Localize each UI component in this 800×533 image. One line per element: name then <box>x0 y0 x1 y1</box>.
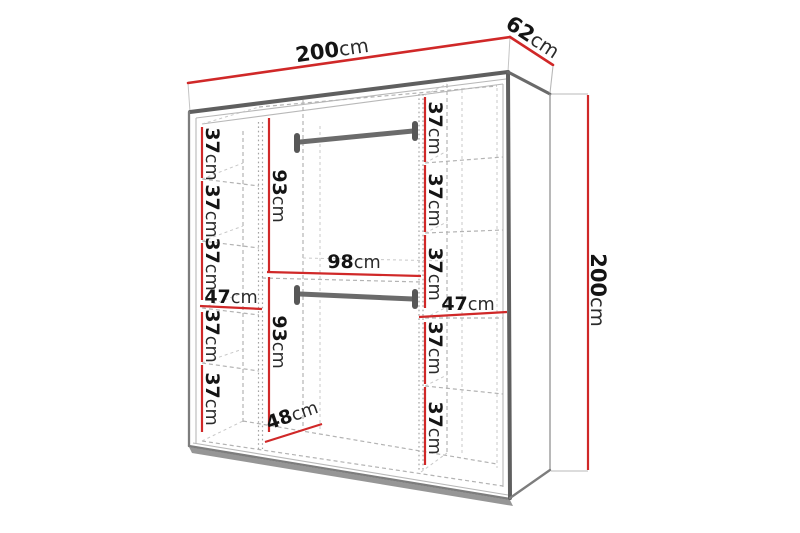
wardrobe-dimension-diagram: 200cm 62cm 200cm 37cm 37cm 37cm 47cm 37c… <box>0 0 800 533</box>
right-shelf-dim-2: 37cm <box>424 173 446 226</box>
front-right-edge <box>508 72 510 498</box>
right-shelf-dim-6: 37cm <box>424 401 446 454</box>
depth-extension-line <box>550 66 553 93</box>
height-dimension-label: 200cm <box>586 253 610 327</box>
left-shelf-dim-4: 47cm <box>204 286 257 308</box>
left-shelf-dim-1: 37cm <box>201 127 223 180</box>
right-shelf-dim-5: 37cm <box>424 321 446 374</box>
wardrobe-side-panel <box>508 72 550 498</box>
diagram-canvas: 200cm 62cm 200cm 37cm 37cm 37cm 47cm 37c… <box>0 0 800 533</box>
left-shelf-dim-5: 37cm <box>201 309 223 362</box>
left-shelf-dim-6: 37cm <box>201 372 223 425</box>
depth-dimension-label: 62cm <box>502 11 565 63</box>
right-shelf-dim-4: 47cm <box>441 293 494 315</box>
center-upper-height-label: 93cm <box>268 169 290 222</box>
right-shelf-dim-1: 37cm <box>424 101 446 154</box>
left-shelf-dim-2: 37cm <box>201 184 223 237</box>
center-lower-height-label: 93cm <box>268 315 290 368</box>
center-width-label: 98cm <box>327 251 380 273</box>
left-shelf-dim-3: 37cm <box>201 237 223 290</box>
